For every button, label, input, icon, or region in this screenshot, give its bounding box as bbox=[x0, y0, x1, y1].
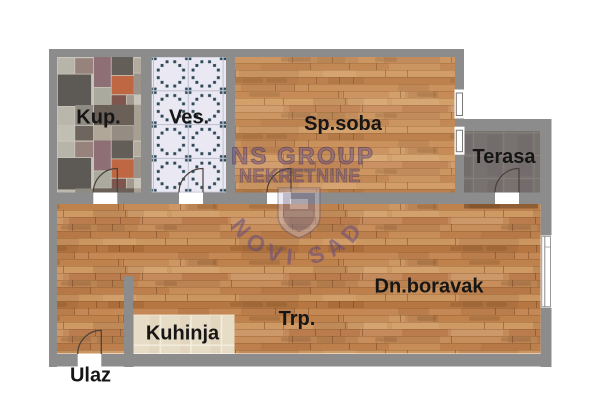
svg-text:NEKRETNINE: NEKRETNINE bbox=[239, 166, 361, 186]
svg-text:Terasa: Terasa bbox=[472, 146, 536, 168]
svg-text:Sp.soba: Sp.soba bbox=[304, 113, 383, 135]
svg-text:Kup.: Kup. bbox=[76, 107, 120, 129]
svg-text:Ves.: Ves. bbox=[169, 107, 209, 129]
svg-text:Ulaz: Ulaz bbox=[70, 365, 111, 387]
svg-text:Dn.boravak: Dn.boravak bbox=[375, 276, 485, 298]
svg-text:Kuhinja: Kuhinja bbox=[146, 323, 220, 345]
svg-text:Trp.: Trp. bbox=[279, 308, 316, 330]
